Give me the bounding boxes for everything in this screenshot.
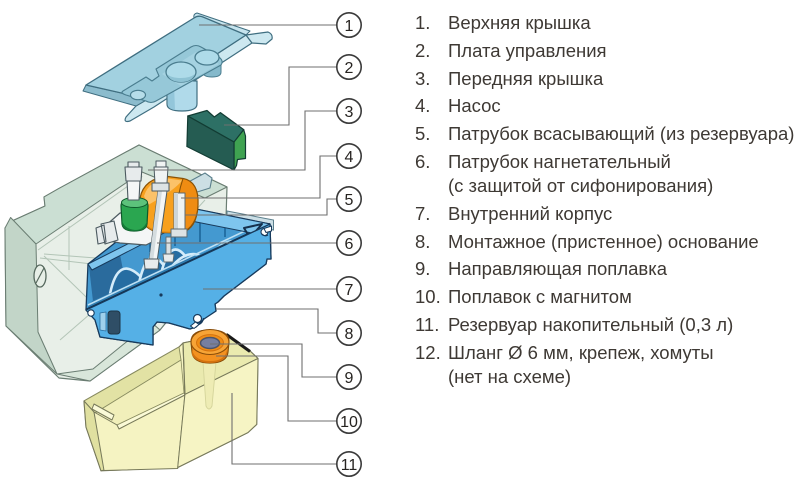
- svg-text:11: 11: [341, 457, 358, 474]
- svg-text:6: 6: [345, 236, 354, 253]
- svg-text:2: 2: [345, 60, 354, 77]
- svg-text:10: 10: [340, 414, 358, 431]
- svg-text:9: 9: [345, 370, 354, 387]
- svg-text:8: 8: [345, 326, 354, 343]
- svg-text:3: 3: [345, 104, 354, 121]
- svg-text:5: 5: [345, 192, 354, 209]
- svg-text:7: 7: [345, 282, 354, 299]
- svg-text:4: 4: [345, 149, 354, 166]
- svg-text:1: 1: [345, 18, 354, 35]
